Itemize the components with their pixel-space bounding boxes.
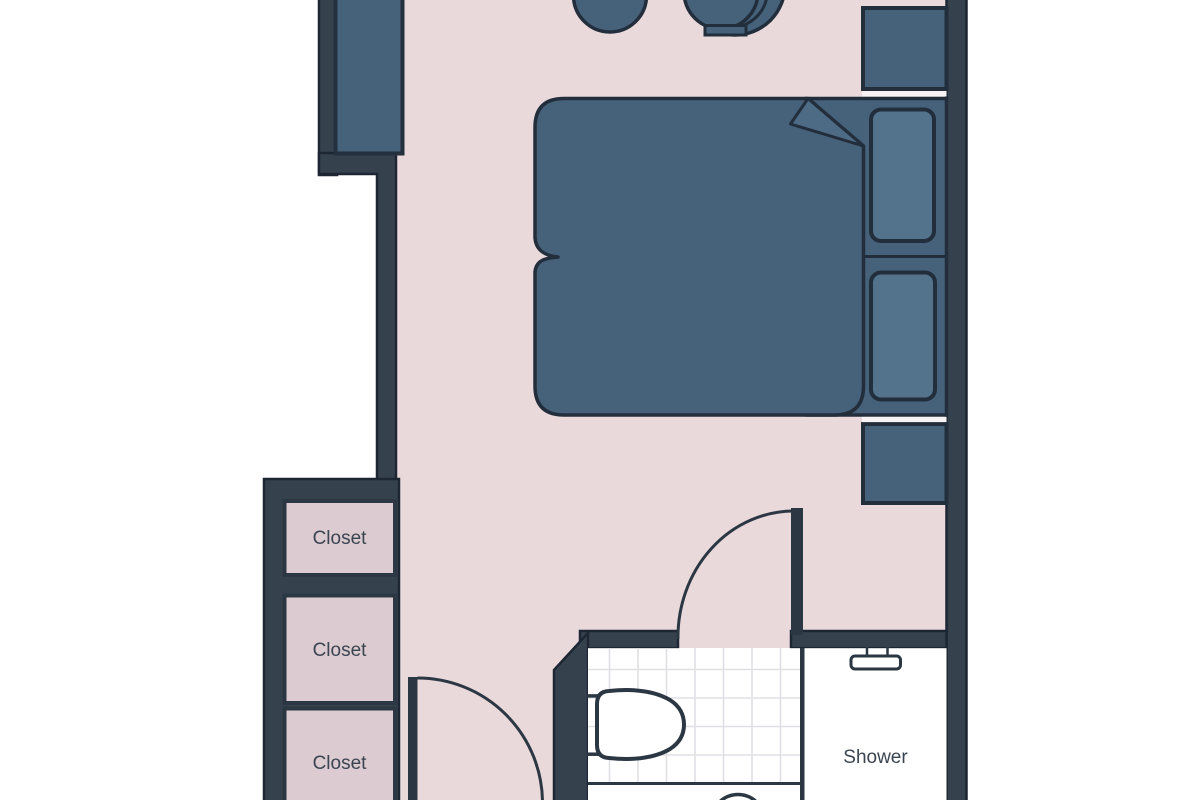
svg-text:Closet: Closet [313, 753, 368, 774]
svg-text:Closet: Closet [313, 528, 368, 549]
svg-text:Shower: Shower [843, 747, 908, 768]
svg-text:Closet: Closet [313, 640, 368, 661]
